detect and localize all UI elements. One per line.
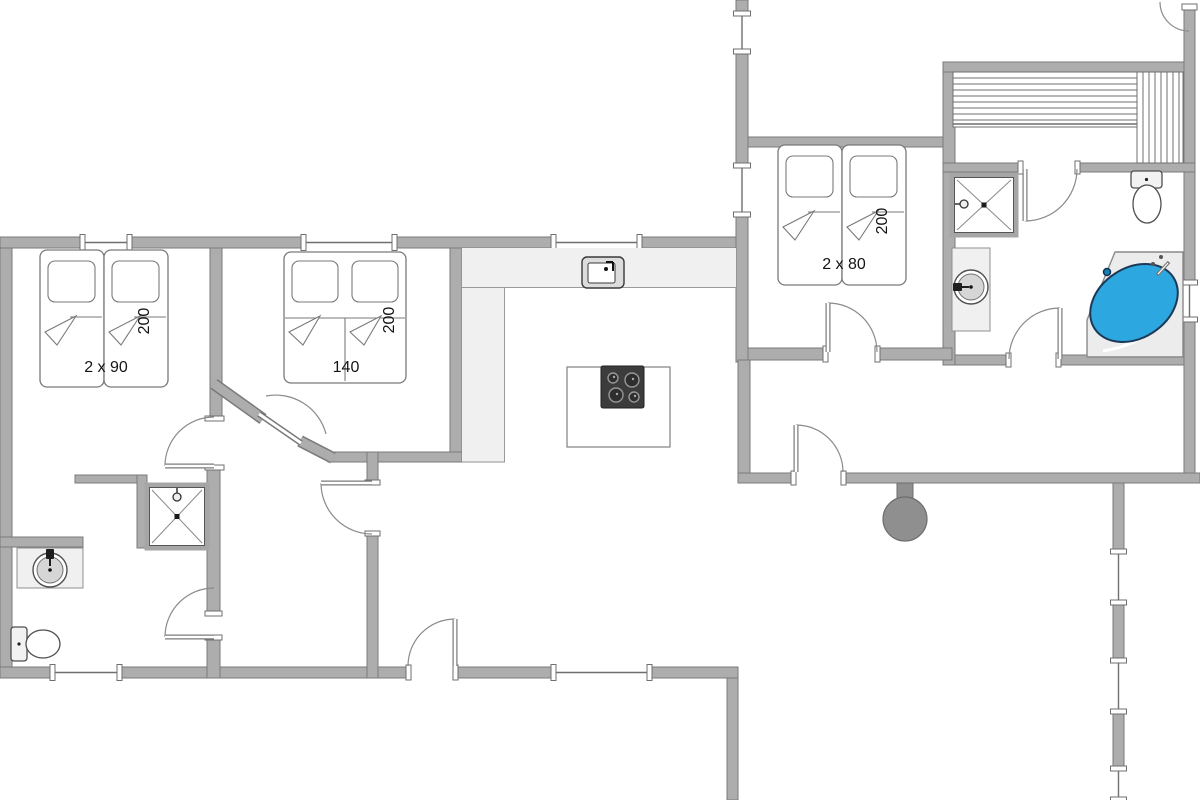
window-cap bbox=[1182, 280, 1198, 285]
bed-pillow bbox=[48, 261, 95, 302]
burner bbox=[625, 373, 639, 387]
door-opening bbox=[1019, 162, 1079, 173]
door-opening bbox=[1007, 354, 1060, 366]
shower-drain bbox=[175, 514, 180, 519]
burner bbox=[629, 392, 639, 402]
wall bbox=[1113, 483, 1124, 800]
shower-head bbox=[173, 493, 181, 501]
window-cap bbox=[551, 665, 556, 681]
burner bbox=[609, 388, 623, 402]
dimension-label: 140 bbox=[333, 359, 360, 376]
wall bbox=[738, 360, 750, 483]
window-cap bbox=[127, 235, 132, 251]
sink-drain bbox=[48, 568, 52, 572]
cooktop bbox=[601, 366, 644, 408]
dimension-label: 2 x 80 bbox=[822, 256, 866, 273]
door-jamb bbox=[791, 471, 796, 485]
window-cap bbox=[1111, 766, 1127, 771]
burner-dot bbox=[613, 376, 615, 378]
wall-cap bbox=[1182, 4, 1197, 10]
wall bbox=[328, 452, 462, 462]
toilet-button bbox=[17, 642, 20, 645]
window-cap bbox=[734, 163, 751, 168]
door-swing-arc bbox=[408, 619, 455, 666]
door-jamb bbox=[205, 611, 222, 616]
door-swing-arc bbox=[1009, 308, 1060, 359]
bed-pillow bbox=[292, 261, 338, 302]
dimension-label: 2 x 90 bbox=[84, 359, 128, 376]
kitchen-counter bbox=[462, 288, 505, 463]
bed-pillow bbox=[352, 261, 398, 302]
bed-pillow bbox=[786, 156, 833, 197]
floor-plan-canvas: 2 x 902001402002 x 80200 bbox=[0, 0, 1200, 800]
kitchen-sink-basin bbox=[588, 263, 615, 283]
door-swing-arc bbox=[1025, 169, 1077, 221]
wall bbox=[75, 475, 147, 483]
bed-pillow bbox=[850, 156, 897, 197]
wall bbox=[450, 248, 462, 462]
sink-faucet bbox=[46, 549, 54, 559]
door-opening bbox=[824, 347, 879, 361]
window-cap bbox=[301, 235, 306, 251]
sink-drain bbox=[969, 285, 973, 289]
burner-dot bbox=[616, 393, 618, 395]
window-cap bbox=[734, 212, 751, 217]
kitchen-faucet-dot bbox=[604, 267, 608, 271]
door-opening bbox=[206, 417, 223, 469]
door-jamb bbox=[875, 346, 880, 362]
door-swing-arc bbox=[321, 483, 372, 534]
door-jamb bbox=[1018, 161, 1023, 174]
door-jamb bbox=[841, 471, 846, 485]
door-swing-arc bbox=[796, 425, 843, 472]
door-opening bbox=[792, 472, 845, 484]
door-swing-arc bbox=[828, 303, 877, 352]
wall bbox=[0, 537, 83, 547]
bathtub-tap-dot bbox=[1159, 255, 1163, 259]
bathtub-tap-dot bbox=[1151, 262, 1155, 266]
window-cap bbox=[1182, 317, 1198, 322]
door-jamb bbox=[1006, 353, 1011, 367]
shower-head bbox=[960, 200, 968, 208]
wall bbox=[0, 237, 12, 678]
door-opening bbox=[407, 666, 457, 679]
wall bbox=[207, 638, 220, 678]
wood-stove bbox=[883, 497, 927, 541]
window-cap bbox=[392, 235, 397, 251]
window-cap bbox=[80, 235, 85, 251]
burner-dot bbox=[632, 378, 634, 380]
bed-pillow bbox=[112, 261, 159, 302]
door-jamb bbox=[453, 665, 458, 680]
dimension-label: 200 bbox=[874, 208, 891, 235]
burner bbox=[608, 373, 618, 383]
dimension-label: 200 bbox=[136, 308, 153, 335]
sauna-bench-horizontal bbox=[953, 72, 1137, 127]
shower-drain bbox=[982, 203, 987, 208]
toilet-bowl bbox=[26, 630, 60, 658]
window-cap bbox=[1111, 600, 1127, 605]
sauna-bench-vertical bbox=[1137, 72, 1183, 163]
toilet-button bbox=[1145, 178, 1148, 181]
window-cap bbox=[734, 49, 751, 54]
wall bbox=[1184, 8, 1195, 475]
window-cap bbox=[734, 11, 751, 16]
door-jamb bbox=[406, 665, 411, 680]
window-cap bbox=[1111, 549, 1127, 554]
dimension-label: 200 bbox=[381, 307, 398, 334]
bathtub-drain bbox=[1104, 269, 1111, 276]
wall bbox=[943, 62, 1195, 72]
window-cap bbox=[1111, 709, 1127, 714]
door-leaf bbox=[259, 414, 301, 443]
burner-dot bbox=[634, 395, 636, 397]
window-cap bbox=[117, 665, 122, 681]
window-cap bbox=[1111, 658, 1127, 663]
window-cap bbox=[50, 665, 55, 681]
sink-faucet bbox=[953, 283, 962, 291]
toilet-bowl bbox=[1133, 185, 1161, 223]
floor-plan: 2 x 902001402002 x 80200 bbox=[0, 0, 1200, 800]
wall bbox=[727, 667, 738, 800]
door-opening bbox=[366, 481, 379, 535]
window-cap bbox=[647, 665, 652, 681]
